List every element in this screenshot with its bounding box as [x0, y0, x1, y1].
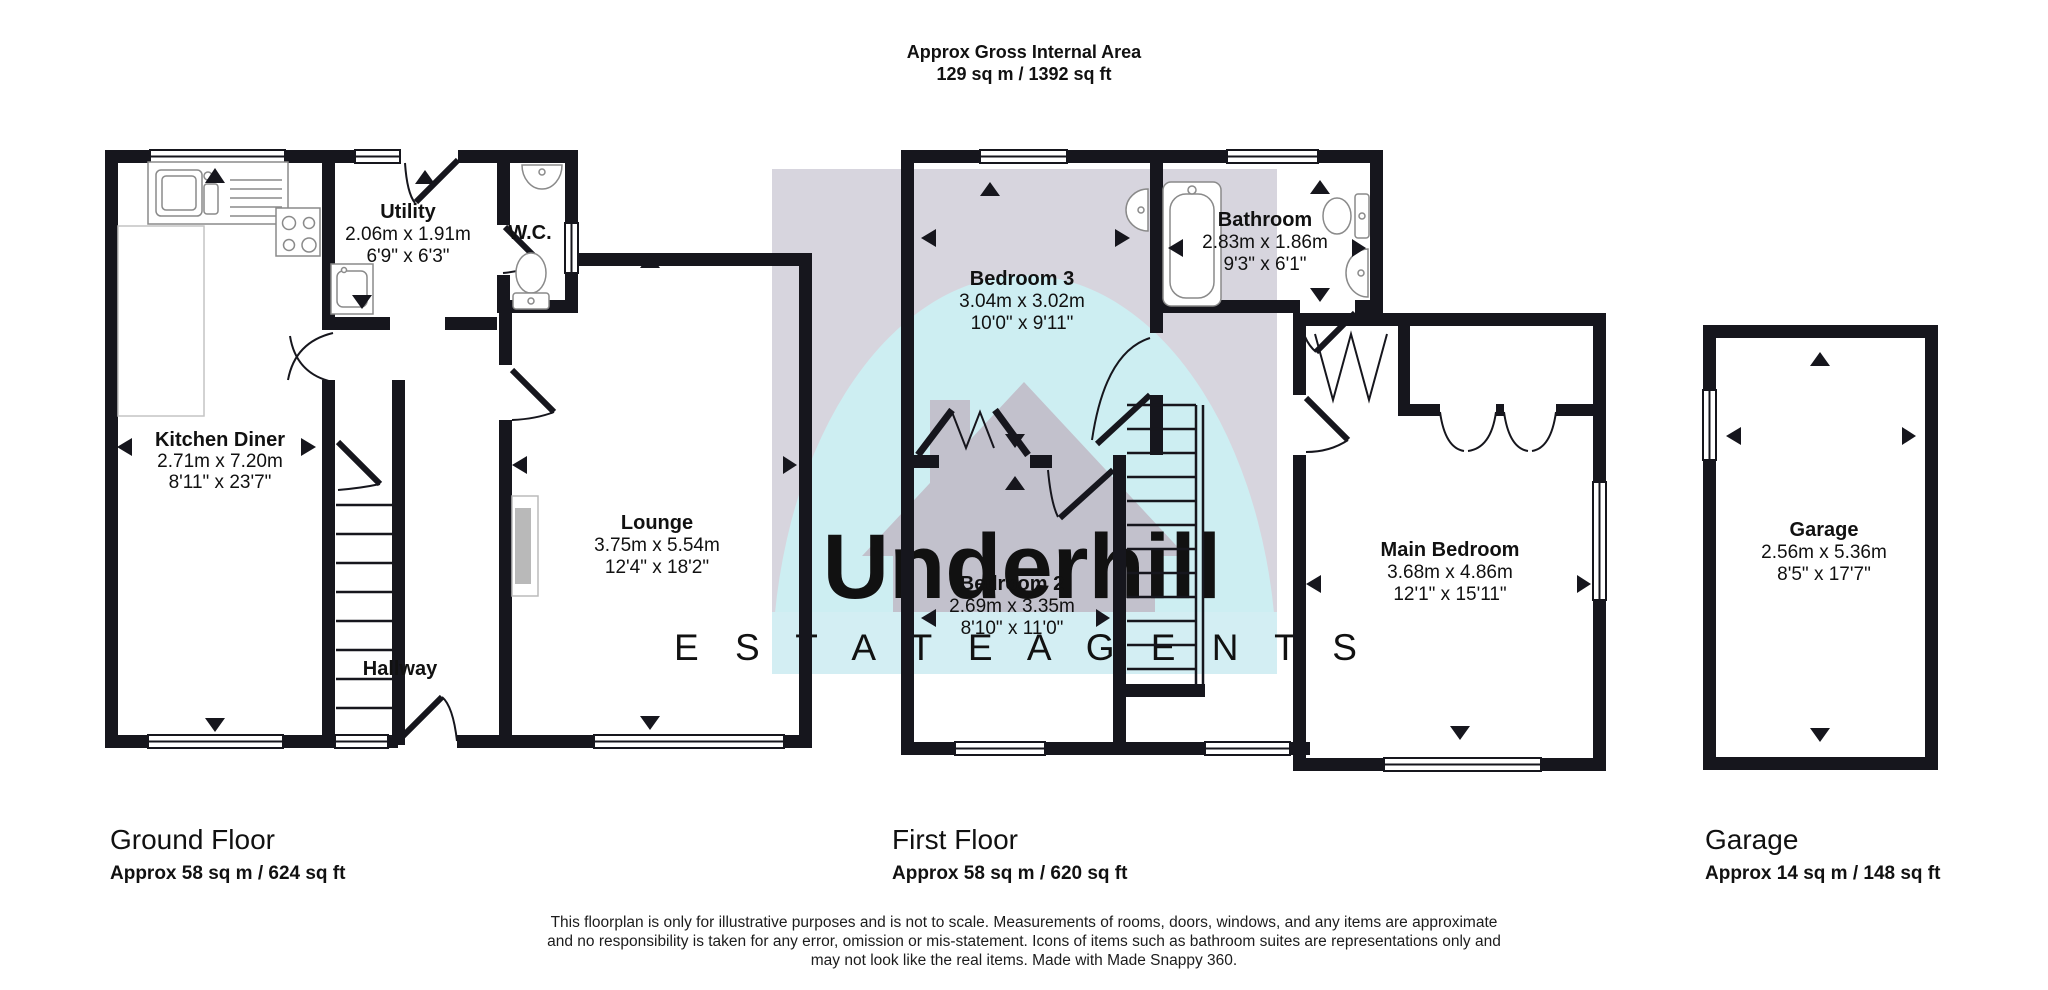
- main-bedroom-door-arc: [1306, 440, 1348, 452]
- garage-plan: Garage 2.56m x 5.36m 8'5" x 17'7": [1703, 325, 1938, 770]
- floorplan-canvas: Underhill E S T A T E A G E N T S Approx…: [0, 0, 2048, 990]
- room-dim-metric: 3.75m x 5.54m: [594, 535, 720, 556]
- garage-caption: Garage: [1705, 824, 1798, 855]
- wardrobe-door-arcs: [1440, 412, 1556, 451]
- main-bedroom-door-leaf: [1306, 398, 1348, 440]
- room-label-hallway: Hallway: [363, 658, 438, 680]
- room-dim-metric: 3.04m x 3.02m: [959, 291, 1085, 312]
- stair-landing-edge: [1126, 684, 1205, 697]
- room-dim-metric: 2.71m x 7.20m: [157, 451, 283, 472]
- first-floor-caption: First Floor: [892, 824, 1018, 855]
- disclaimer-line-1: This floorplan is only for illustrative …: [551, 914, 1498, 931]
- header-title: Approx Gross Internal Area: [907, 42, 1142, 62]
- toilet-button: [1359, 213, 1365, 219]
- utility-sink-tap: [342, 268, 347, 273]
- wc-toilet-icon: [516, 253, 546, 293]
- room-label-utility: Utility: [380, 201, 436, 223]
- disclaimer: This floorplan is only for illustrative …: [547, 914, 1501, 969]
- kitchen-counter-outline: [118, 226, 204, 416]
- lounge-door-arc: [512, 412, 554, 420]
- basin-tap: [1358, 270, 1364, 276]
- room-dim-imperial: 12'4" x 18'2": [605, 557, 709, 578]
- room-label-main-bedroom: Main Bedroom: [1381, 539, 1520, 561]
- ground-floor-area: Approx 58 sq m / 624 sq ft: [110, 863, 346, 884]
- garage-area: Approx 14 sq m / 148 sq ft: [1705, 863, 1941, 884]
- hob-icon: [276, 208, 320, 256]
- ground-floor-caption: Ground Floor: [110, 824, 275, 855]
- garage-windows: [1703, 390, 1716, 460]
- room-dim-imperial: 8'10" x 11'0": [961, 618, 1064, 639]
- fireplace-hearth: [515, 508, 531, 584]
- room-dim-imperial: 8'11" x 23'7": [169, 472, 272, 493]
- bathtub-tap: [1188, 186, 1196, 194]
- bedroom3-basin-tap: [1138, 207, 1144, 213]
- room-dim-imperial: 6'9" x 6'3": [366, 246, 449, 267]
- room-dim-imperial: 10'0" x 9'11": [971, 313, 1074, 334]
- room-label-lounge: Lounge: [621, 512, 693, 534]
- room-label-bedroom3: Bedroom 3: [970, 268, 1074, 290]
- room-dim-metric: 2.56m x 5.36m: [1761, 542, 1887, 563]
- room-dim-imperial: 8'5" x 17'7": [1777, 564, 1871, 585]
- room-label-kitchen-diner: Kitchen Diner: [155, 429, 285, 451]
- room-label-bedroom2: Bedroom 2: [960, 573, 1064, 595]
- utility-door-arc: [405, 163, 415, 203]
- header: Approx Gross Internal Area 129 sq m / 13…: [907, 42, 1142, 84]
- room-dim-imperial: 12'1" x 15'11": [1393, 584, 1506, 605]
- room-dim-metric: 2.69m x 3.35m: [949, 596, 1075, 617]
- front-door-arc: [442, 697, 457, 741]
- floorplan-page: Underhill E S T A T E A G E N T S Approx…: [0, 0, 2048, 990]
- toilet-icon: [1323, 198, 1351, 234]
- lounge-door-leaf: [512, 370, 554, 412]
- room-dim-metric: 2.06m x 1.91m: [345, 224, 471, 245]
- sink-bowl-inner: [162, 176, 196, 210]
- room-dim-metric: 3.68m x 4.86m: [1387, 562, 1513, 583]
- disclaimer-line-2: and no responsibility is taken for any e…: [547, 933, 1501, 950]
- room-dim-imperial: 9'3" x 6'1": [1223, 254, 1306, 275]
- garage-room-labels: Garage 2.56m x 5.36m 8'5" x 17'7": [1761, 519, 1887, 585]
- room-label-bathroom: Bathroom: [1218, 209, 1312, 231]
- room-dim-metric: 2.83m x 1.86m: [1202, 232, 1328, 253]
- ground-floor-room-labels: Kitchen Diner 2.71m x 7.20m 8'11" x 23'7…: [155, 201, 720, 680]
- room-label-garage: Garage: [1790, 519, 1859, 541]
- cupboard-door-arc: [338, 484, 380, 490]
- disclaimer-line-3: may not look like the real items. Made w…: [811, 952, 1237, 969]
- wc-toilet-button: [528, 298, 534, 304]
- ground-floor-fixtures: [118, 162, 562, 596]
- wc-basin-tap: [539, 169, 545, 175]
- floor-captions: Ground Floor Approx 58 sq m / 624 sq ft …: [110, 824, 1941, 884]
- room-label-wc: W.C.: [508, 222, 551, 244]
- cupboard-door-leaf: [338, 442, 380, 484]
- sink-half-bowl: [204, 184, 218, 214]
- header-area: 129 sq m / 1392 sq ft: [936, 64, 1111, 84]
- first-floor-area: Approx 58 sq m / 620 sq ft: [892, 863, 1128, 884]
